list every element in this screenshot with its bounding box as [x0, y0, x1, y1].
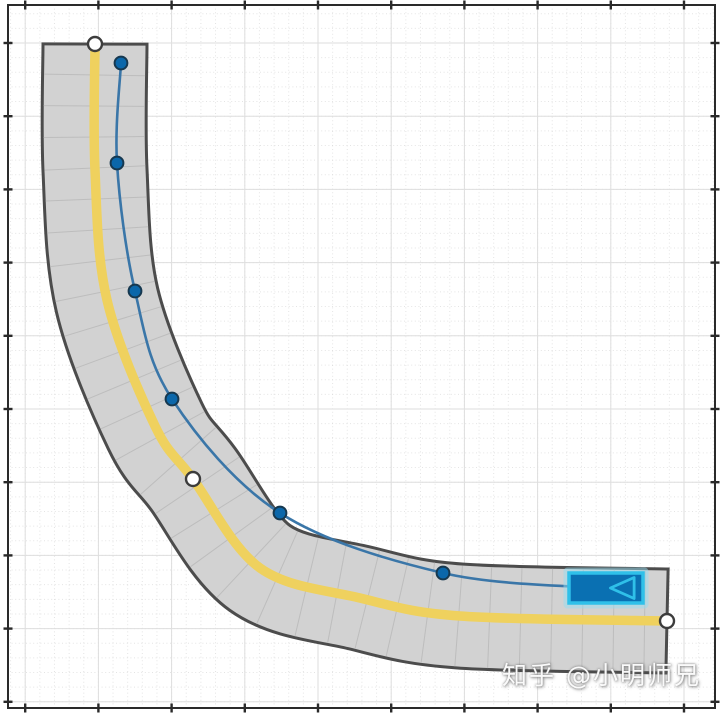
road-waypoint[interactable] [186, 472, 200, 486]
scenario-plot[interactable] [0, 0, 720, 713]
trajectory-waypoint[interactable] [129, 285, 142, 298]
trajectory-waypoint[interactable] [437, 567, 450, 580]
road-waypoint[interactable] [660, 614, 674, 628]
scenario-canvas[interactable]: 知乎 @小明师兄 [0, 0, 720, 713]
ego-vehicle-layer [566, 570, 647, 607]
trajectory-waypoint[interactable] [274, 507, 287, 520]
trajectory-waypoint[interactable] [115, 57, 128, 70]
ego-vehicle[interactable] [566, 570, 647, 607]
road-waypoint[interactable] [88, 37, 102, 51]
trajectory-waypoint[interactable] [166, 393, 179, 406]
trajectory-waypoint[interactable] [111, 157, 124, 170]
